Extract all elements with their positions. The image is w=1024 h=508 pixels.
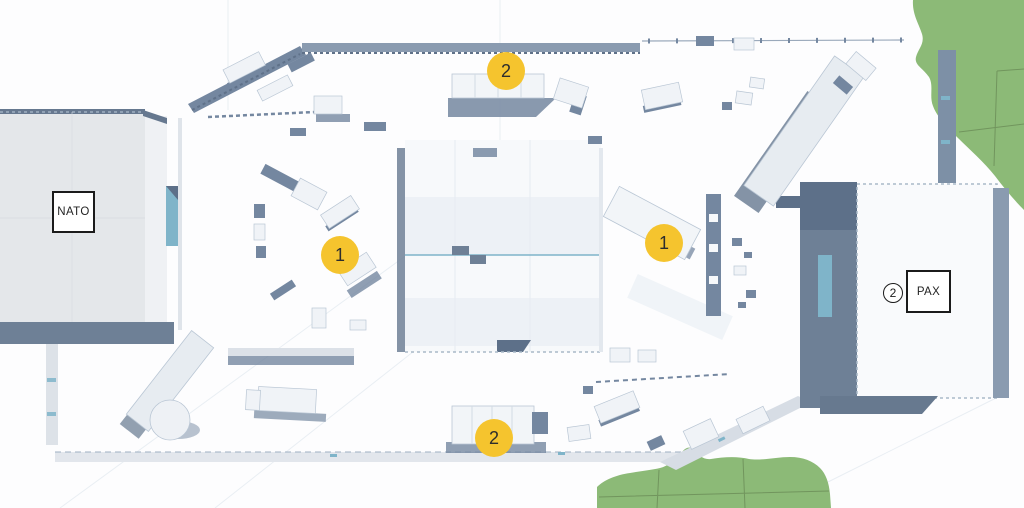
zone-label-nato: NATO: [52, 191, 95, 233]
objective-marker-2-top[interactable]: 2: [487, 52, 525, 90]
zone-label-pax: PAX: [906, 270, 951, 313]
objective-marker-1-left[interactable]: 1: [321, 236, 359, 274]
objective-marker-2-bottom[interactable]: 2: [475, 419, 513, 457]
objective-marker-1-right[interactable]: 1: [645, 224, 683, 262]
pax-count-marker[interactable]: 2: [883, 283, 903, 303]
site-map: 2 1 1 2 2 NATO PAX: [0, 0, 1024, 508]
warehouse-center: [397, 140, 603, 352]
